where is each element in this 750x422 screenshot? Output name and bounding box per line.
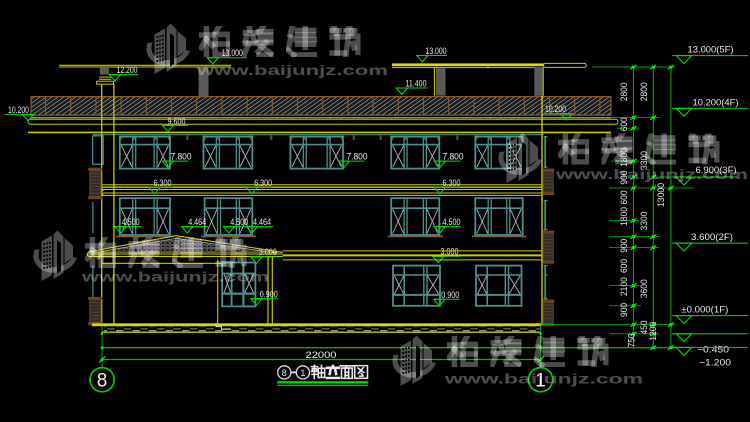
svg-text:10.200: 10.200 xyxy=(8,105,29,115)
svg-text:13000: 13000 xyxy=(655,183,666,207)
svg-text:−0.450: −0.450 xyxy=(697,345,729,355)
svg-text:6.300: 6.300 xyxy=(443,178,461,188)
svg-text:3300: 3300 xyxy=(638,212,649,231)
svg-text:www.baijunjz.com: www.baijunjz.com xyxy=(554,167,748,183)
svg-text:3.000: 3.000 xyxy=(259,247,277,257)
svg-text:13.000: 13.000 xyxy=(426,46,447,56)
svg-text:0.900: 0.900 xyxy=(260,289,278,299)
svg-text:900: 900 xyxy=(618,303,629,317)
svg-text:1: 1 xyxy=(300,368,305,379)
svg-text:2800: 2800 xyxy=(638,82,649,101)
svg-text:7.800: 7.800 xyxy=(443,152,464,162)
svg-text:900: 900 xyxy=(618,239,629,253)
svg-text:6.300: 6.300 xyxy=(254,178,272,188)
svg-text:www.baijunjz.com: www.baijunjz.com xyxy=(80,270,269,286)
svg-text:4.500: 4.500 xyxy=(122,217,140,227)
svg-text:8: 8 xyxy=(282,368,287,379)
svg-text:4.500: 4.500 xyxy=(443,217,461,227)
svg-text:600: 600 xyxy=(618,117,629,131)
svg-text:2800: 2800 xyxy=(618,82,629,101)
svg-text:750: 750 xyxy=(626,333,637,347)
svg-text:7.800: 7.800 xyxy=(171,152,192,162)
svg-text:0.900: 0.900 xyxy=(441,290,459,300)
svg-text:8: 8 xyxy=(97,370,108,391)
svg-text:4.464: 4.464 xyxy=(188,217,206,227)
svg-text:4.500: 4.500 xyxy=(230,217,248,227)
svg-text:±0.000(1F): ±0.000(1F) xyxy=(681,305,728,315)
svg-text:12.200: 12.200 xyxy=(117,65,138,75)
svg-text:10.200: 10.200 xyxy=(545,104,566,114)
svg-text:600: 600 xyxy=(618,259,629,273)
svg-text:−1.200: −1.200 xyxy=(699,358,731,368)
svg-text:2100: 2100 xyxy=(618,277,629,296)
svg-text:7.800: 7.800 xyxy=(347,152,368,162)
svg-text:6.300: 6.300 xyxy=(154,178,172,188)
svg-text:1800: 1800 xyxy=(618,207,629,226)
svg-text:600: 600 xyxy=(618,191,629,205)
svg-text:3.600(2F): 3.600(2F) xyxy=(691,232,733,242)
svg-text:13.000(5F): 13.000(5F) xyxy=(688,45,734,55)
svg-text:9.600: 9.600 xyxy=(168,116,186,126)
svg-text:1200: 1200 xyxy=(647,322,658,341)
svg-text:10.200(4F): 10.200(4F) xyxy=(693,97,739,107)
svg-text:3600: 3600 xyxy=(638,279,649,298)
svg-text:www.baijunjz.com: www.baijunjz.com xyxy=(443,372,643,388)
svg-text:11.400: 11.400 xyxy=(406,79,427,89)
svg-text:4.464: 4.464 xyxy=(253,217,271,227)
svg-text:22000: 22000 xyxy=(306,349,337,360)
svg-text:www.baijunjz.com: www.baijunjz.com xyxy=(195,63,388,79)
